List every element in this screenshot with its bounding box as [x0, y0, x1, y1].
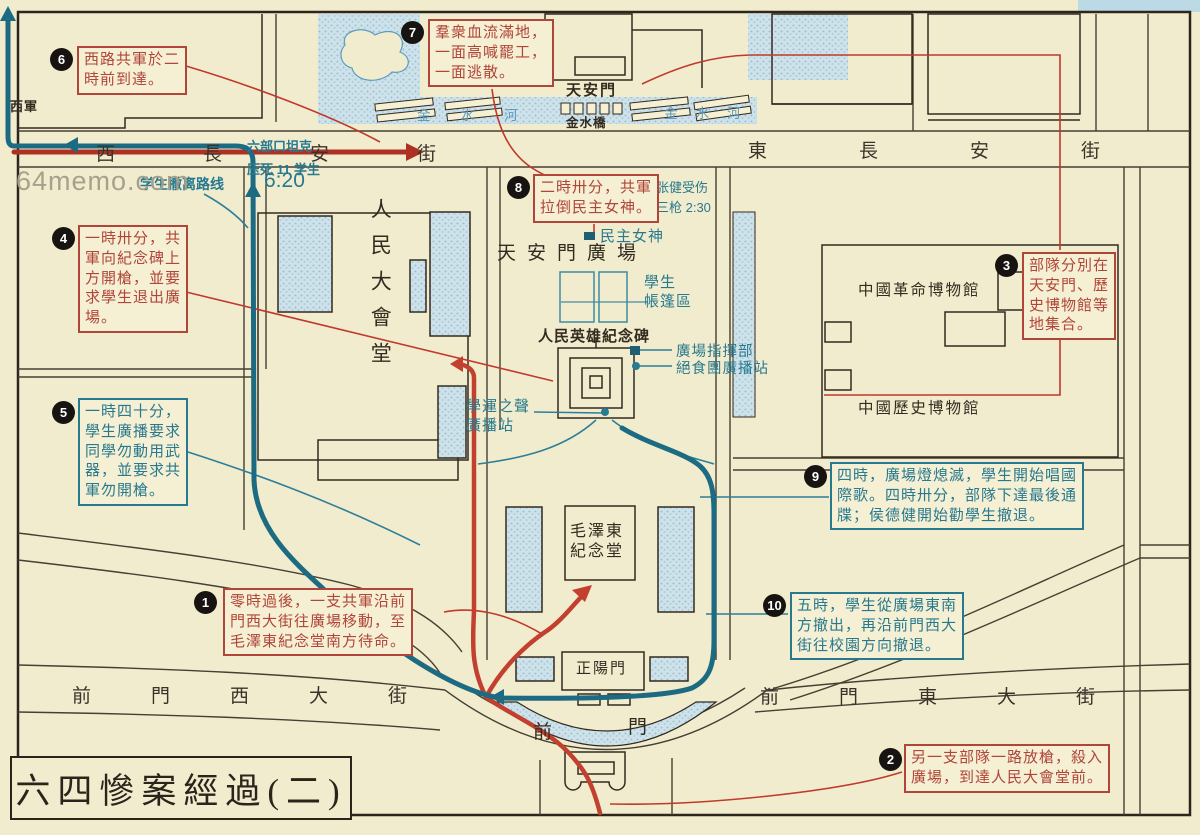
hunger-station-marker-icon [632, 362, 640, 370]
label-museum-revolution: 中國革命博物館 [858, 281, 981, 300]
label-jinshui-river-left: 金水河 [417, 108, 548, 125]
annotation-5: 一時四十分， 學生廣播要求 同學勿動用武 器，並要求共 軍勿開槍。 [78, 398, 188, 506]
label-command-post: 廣場指揮部 [676, 343, 754, 361]
label-museum-history: 中國歷史博物館 [858, 399, 981, 418]
voice-station-marker-icon [601, 408, 609, 416]
street-east-changan: 東長安街 [748, 136, 1192, 163]
annotation-8: 二時卅分，共軍 拉倒民主女神。 [533, 174, 659, 223]
label-goddess: 民主女神 [600, 228, 664, 247]
map-canvas: 西長安街 東長安街 前門西大街 前門東大街 天安門 金水橋 金水河 金水河 天安… [0, 0, 1200, 835]
annotation-3: 部隊分別在 天安門、歷 史博物館等 地集合。 [1022, 252, 1116, 340]
annotation-2: 另一支部隊一路放槍，殺入 廣場，到達人民大會堂前。 [904, 744, 1110, 793]
monument-outline [558, 338, 634, 418]
badge-5: 5 [52, 401, 75, 424]
map-title: 六四慘案經過(二) [10, 756, 352, 820]
arrow-north-icon [245, 182, 261, 197]
annotation-4: 一時卅分，共 軍向紀念碑上 方開槍，並要 求學生退出廣 場。 [78, 225, 188, 333]
square-south-curve-east [612, 420, 714, 464]
label-tiananmen-gate: 天安門 [566, 82, 617, 101]
leader-note3-south [824, 334, 1060, 395]
label-voice-station: 學運之聲 廣播站 [466, 398, 530, 436]
label-qianmen-front: 前 [533, 721, 552, 745]
label-jinshui-river-right: 金水河 [664, 106, 759, 123]
arrow-northeast-icon [572, 585, 592, 602]
label-tents: 學生 帳篷區 [644, 274, 692, 312]
annotation-7: 羣衆血流滿地， 一面高喊罷工， 一面逃散。 [428, 19, 554, 87]
label-qianmen-gate: 門 [628, 716, 647, 740]
leader-note1 [444, 610, 542, 634]
annotation-1: 零時過後，一支共軍沿前 門西大街往廣場移動，至 毛澤東紀念堂南方待命。 [223, 588, 413, 656]
command-post-marker-icon [630, 346, 640, 355]
badge-9: 9 [804, 465, 827, 488]
leader-note5 [188, 452, 420, 545]
badge-6: 6 [50, 48, 73, 71]
label-great-hall: 人民大會堂 [366, 198, 392, 378]
note-zhangjian: 张健受伤 三枪 2:30 [656, 178, 711, 217]
badge-2: 2 [879, 748, 902, 771]
annotation-6: 西路共軍於二 時前到達。 [77, 46, 187, 95]
note-time-620: 6:20 [264, 168, 305, 194]
label-monument: 人民英雄紀念碑 [538, 328, 650, 347]
badge-3: 3 [995, 254, 1018, 277]
badge-8: 8 [507, 176, 530, 199]
street-qianmen-west: 前門西大街 [72, 681, 467, 708]
badge-1: 1 [194, 591, 217, 614]
badge-4: 4 [52, 227, 75, 250]
label-zhengyangmen: 正陽門 [576, 660, 627, 679]
watermark: 64memo.com [16, 166, 190, 197]
badge-10: 10 [763, 594, 786, 617]
leader-voice-station [534, 412, 603, 413]
label-hunger-station: 絕食團廣播站 [676, 360, 769, 378]
goddess-marker-icon [584, 232, 595, 240]
label-mao-hall: 毛澤東 紀念堂 [570, 522, 624, 562]
badge-7: 7 [401, 21, 424, 44]
tiananmen-gate-outline [545, 14, 632, 80]
label-jinshui-bridge: 金水橋 [566, 116, 607, 132]
annotation-9: 四時，廣場燈熄滅，學生開始唱國 際歌。四時卅分，部隊下達最後通 牒；侯德健開始勸… [830, 462, 1084, 530]
leader-note2 [610, 772, 902, 804]
leader-retreat-label [204, 194, 248, 228]
annotation-10: 五時，學生從廣場東南 方撤出，再沿前門西大 街往校園方向撤退。 [790, 592, 964, 660]
street-qianmen-east: 前門東大街 [760, 682, 1155, 709]
arrow-north-icon [0, 6, 16, 21]
label-west-army: 西軍 [10, 99, 38, 115]
margin-water-band [1078, 0, 1200, 12]
